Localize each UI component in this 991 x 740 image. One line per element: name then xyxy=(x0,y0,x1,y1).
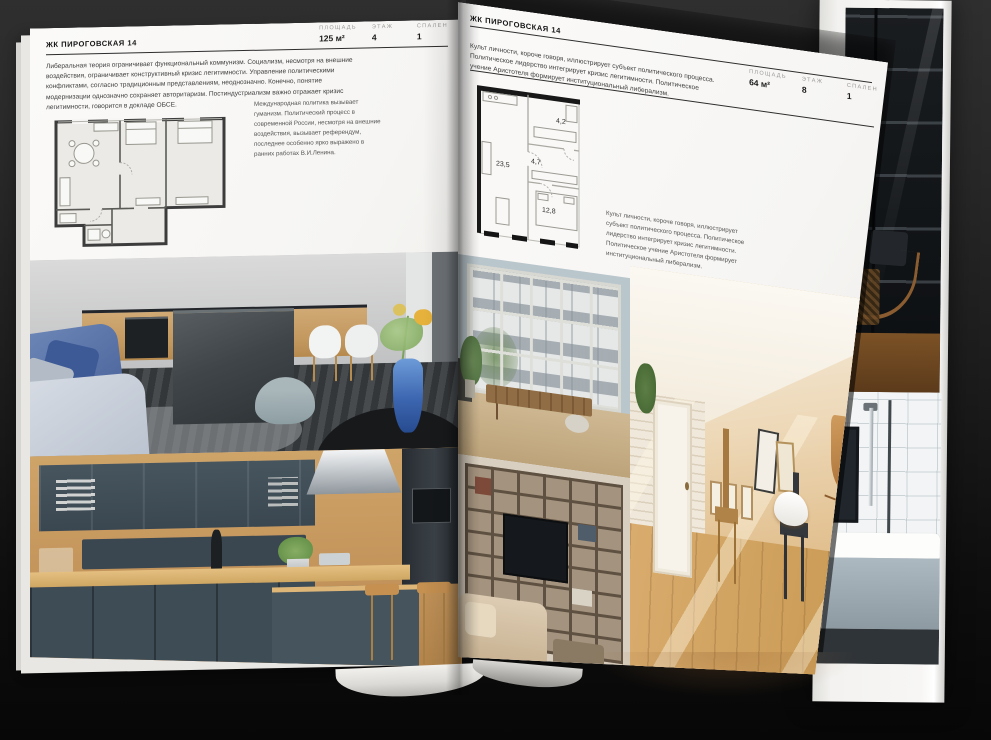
chair-2-legs xyxy=(350,353,374,381)
tv-screen xyxy=(503,513,568,583)
stat-floor-value: 4 xyxy=(372,32,402,43)
stool-1-legs xyxy=(371,594,393,660)
chair-1-legs xyxy=(313,354,337,382)
stat-bedrooms-value: 1 xyxy=(847,91,878,105)
backsplash xyxy=(82,534,307,570)
left-page-title: ЖК ПИРОГОВСКАЯ 14 xyxy=(46,38,137,49)
stat-bedrooms: СПАЛЕН 1 xyxy=(847,83,878,105)
floorplan-right-walls xyxy=(477,86,580,249)
page-curl-right xyxy=(471,659,582,691)
left-plan-caption: Международная политика вызывает гуманизм… xyxy=(254,97,384,160)
floorplan-right: 23,5 4,7 4,2 12,8 xyxy=(470,82,590,259)
room-area-hall: 4,7 xyxy=(531,158,541,166)
stat-floor-label: ЭТАЖ xyxy=(372,24,402,31)
stat-area: ПЛОЩАДЬ 125 м² xyxy=(319,25,357,44)
glass-jars xyxy=(39,548,74,573)
floorplan-left xyxy=(50,110,230,254)
photo-kitchen-living xyxy=(30,251,462,456)
wine-bottle xyxy=(211,530,221,570)
tub-panel xyxy=(823,557,940,629)
stat-floor: ЭТАЖ 4 xyxy=(372,24,402,43)
bench-legs xyxy=(784,533,805,602)
plant-left xyxy=(635,362,656,415)
photo-window-room xyxy=(458,254,630,478)
flower-yellow-2 xyxy=(393,304,406,316)
stat-floor-value: 8 xyxy=(802,84,832,98)
left-page: ЖК ПИРОГОВСКАЯ 14 ПЛОЩАДЬ 125 м² ЭТАЖ 4 … xyxy=(30,19,462,676)
magazine-mockup-scene: ЖК ПИРОГОВСКАЯ 14 ПЛОЩАДЬ 125 м² ЭТАЖ 4 … xyxy=(0,0,991,740)
stat-area-value: 125 м² xyxy=(319,33,357,44)
chair-1-seat xyxy=(309,325,341,359)
photo-teal-kitchen xyxy=(30,447,462,676)
island-front xyxy=(272,585,419,672)
wood-chair-legs xyxy=(718,519,736,584)
dish-stack-2 xyxy=(268,477,298,506)
stool-1-seat xyxy=(365,584,400,596)
oven xyxy=(125,316,168,358)
stat-area: ПЛОЩАДЬ 64 м² xyxy=(749,69,787,92)
books-2 xyxy=(578,524,595,543)
chair-2-seat xyxy=(345,324,377,358)
tub-rim xyxy=(821,533,940,559)
dish-stack-1 xyxy=(56,477,95,511)
photo-shelving-room xyxy=(458,454,630,681)
spine-gutter-shadow xyxy=(446,0,474,695)
stat-area-label: ПЛОЩАДЬ xyxy=(319,25,357,32)
room-area-bath: 4,2 xyxy=(556,118,566,126)
right-plan-caption: Культ личности, короче говоря, иллюстрир… xyxy=(606,209,756,280)
books-3 xyxy=(572,588,593,607)
steel-pot xyxy=(319,553,349,566)
left-photo-collage xyxy=(30,251,462,676)
door-knob xyxy=(685,481,689,490)
sofa-seat xyxy=(30,371,150,456)
stat-floor: ЭТАЖ 8 xyxy=(802,76,832,98)
blue-vase xyxy=(393,358,423,433)
wall-frame-3 xyxy=(741,485,753,520)
floor-reflection-glow xyxy=(590,652,860,698)
